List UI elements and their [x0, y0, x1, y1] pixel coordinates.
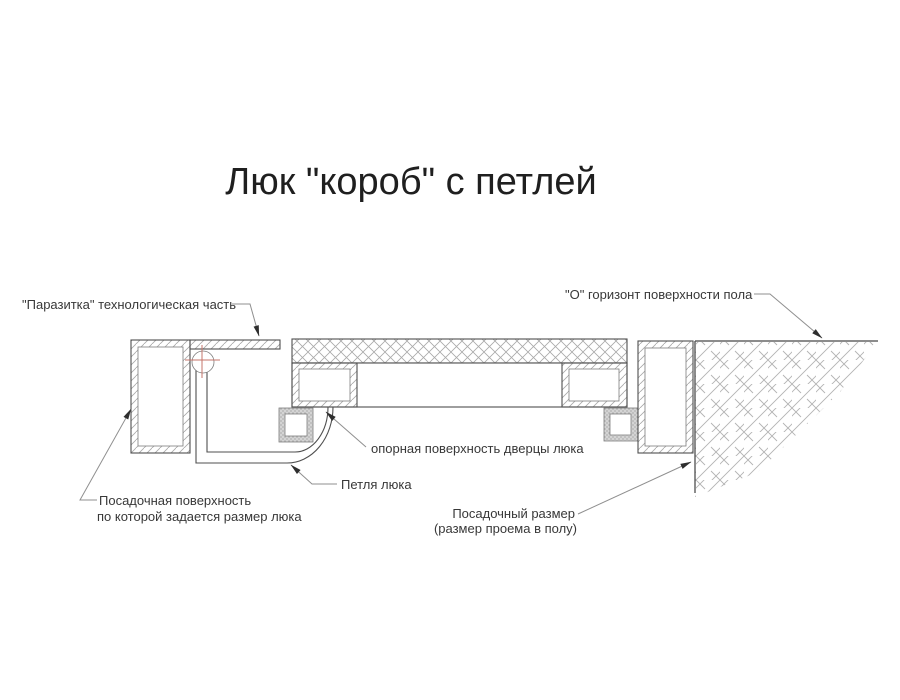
leader-horizon	[754, 294, 822, 338]
leader-seating-surface	[80, 409, 131, 500]
leader-parasitka	[232, 304, 259, 336]
leader-opening-size	[578, 462, 691, 514]
hinge-pivot-circle	[192, 351, 214, 373]
parasitka-strip	[190, 340, 280, 349]
door-assembly	[279, 339, 638, 442]
door-tile-strip	[292, 339, 627, 363]
drawing-title: Люк "короб" с петлей	[225, 161, 596, 203]
label-horizon: "О" горизонт поверхности пола	[565, 287, 753, 302]
floor-slab-section	[695, 341, 878, 497]
left-frame-profile	[131, 340, 190, 453]
hatch-section-drawing: Люк "короб" с петлей "Паразитка" техноло…	[0, 0, 900, 700]
door-left-block	[292, 363, 357, 407]
label-seating-surface-line1: Посадочная поверхность	[99, 493, 251, 508]
right-frame-profile	[638, 341, 693, 453]
door-seal-right	[604, 408, 638, 441]
label-opening-size-line1: Посадочный размер	[452, 506, 575, 521]
leader-support-surface	[326, 412, 366, 447]
label-support-surface: опорная поверхность дверцы люка	[371, 441, 584, 456]
leader-hinge	[291, 465, 337, 484]
floor-hatch-area	[695, 341, 878, 497]
label-opening-size-line2: (размер проема в полу)	[434, 521, 577, 536]
door-seal-left	[279, 408, 313, 442]
door-right-block	[562, 363, 627, 407]
label-parasitka: "Паразитка" технологическая часть	[22, 297, 236, 312]
diagram-canvas: Люк "короб" с петлей "Паразитка" техноло…	[0, 0, 900, 700]
label-hinge: Петля люка	[341, 477, 412, 492]
label-seating-surface-line2: по которой задается размер люка	[97, 509, 302, 524]
